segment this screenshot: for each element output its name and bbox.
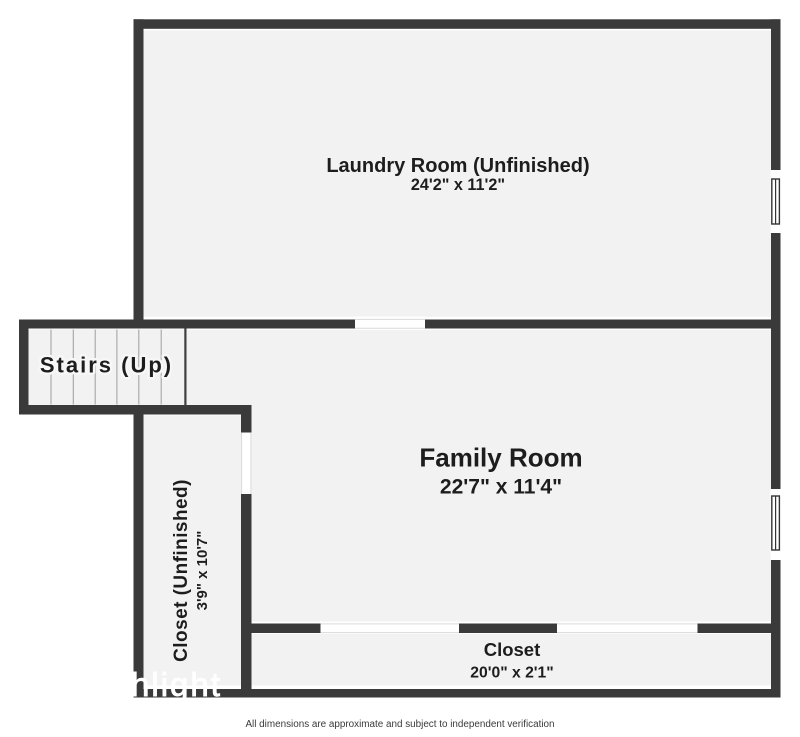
svg-text:3'9" x 10'7": 3'9" x 10'7" xyxy=(194,531,211,611)
svg-text:Laundry Room (Unfinished): Laundry Room (Unfinished) xyxy=(326,155,589,177)
svg-text:24'2" x 11'2": 24'2" x 11'2" xyxy=(411,176,505,194)
svg-text:All dimensions are approximate: All dimensions are approximate and subje… xyxy=(245,719,554,730)
svg-text:Closet: Closet xyxy=(484,639,541,660)
svg-text:Family Room: Family Room xyxy=(419,443,582,473)
svg-text:Closet (Unfinished): Closet (Unfinished) xyxy=(171,479,192,662)
svg-text:22'7" x 11'4": 22'7" x 11'4" xyxy=(440,476,562,499)
svg-text:Stairs (Up): Stairs (Up) xyxy=(40,352,173,377)
svg-text:highlight: highlight xyxy=(81,666,222,703)
svg-text:20'0" x 2'1": 20'0" x 2'1" xyxy=(470,665,553,682)
